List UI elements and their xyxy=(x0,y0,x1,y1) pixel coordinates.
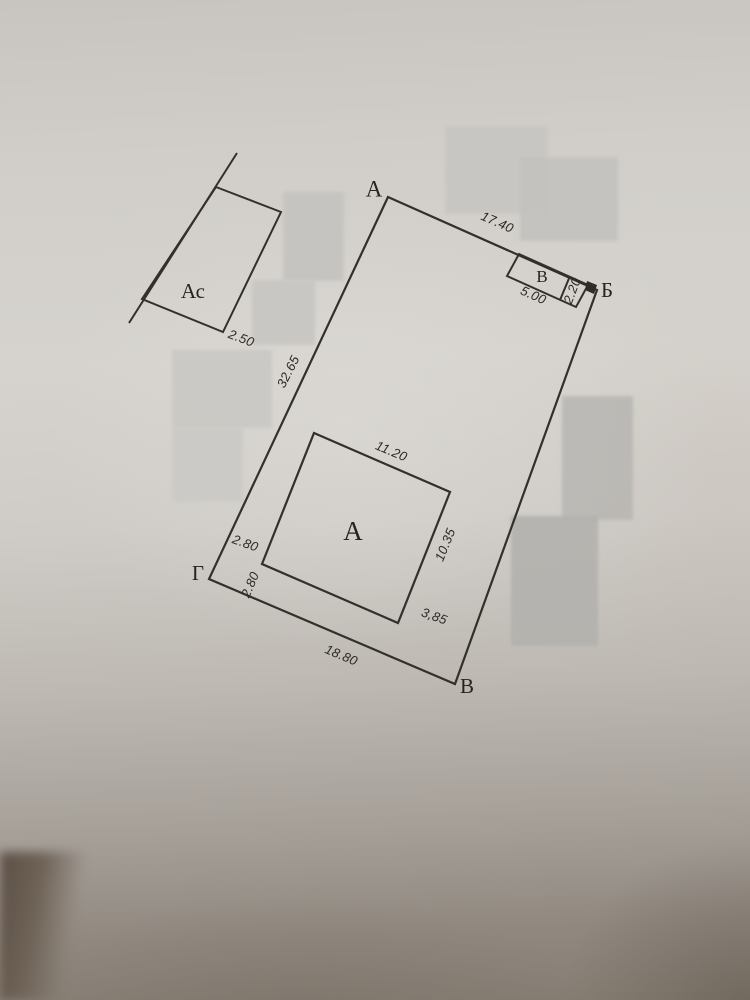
corner-label-v: В xyxy=(460,674,474,698)
dim-parcel-top: 17.40 xyxy=(479,208,517,236)
dim-parcel-bottom: 18.80 xyxy=(323,641,361,668)
dim-building-right: 10.35 xyxy=(432,526,459,564)
dim-building-offset-left-upper: 2.80 xyxy=(229,531,260,555)
corner-label-b: Б xyxy=(601,278,613,302)
shed-b-label: В xyxy=(536,267,547,286)
dim-building-offset-bottom: 3,85 xyxy=(419,604,449,627)
dim-shed-depth: 2.20 xyxy=(560,275,584,306)
corner-label-a: А xyxy=(366,176,383,201)
dim-shed-width: 5.00 xyxy=(518,283,549,308)
corner-label-g: Г xyxy=(192,561,204,585)
building-a-label: А xyxy=(343,516,363,546)
plan-drawing: А Б В Г А В Ас 17.40 32.65 18.80 5.00 2.… xyxy=(0,0,750,1000)
dim-annex-width: 2.50 xyxy=(225,326,256,350)
annex-label: Ас xyxy=(181,279,205,303)
survey-plan-photo: А Б В Г А В Ас 17.40 32.65 18.80 5.00 2.… xyxy=(0,0,750,1000)
photo-corner-shadow xyxy=(0,852,86,1000)
dim-building-offset-left-lower: 2.80 xyxy=(238,569,263,601)
dim-parcel-left: 32.65 xyxy=(274,353,303,391)
annex-outline xyxy=(142,187,281,332)
